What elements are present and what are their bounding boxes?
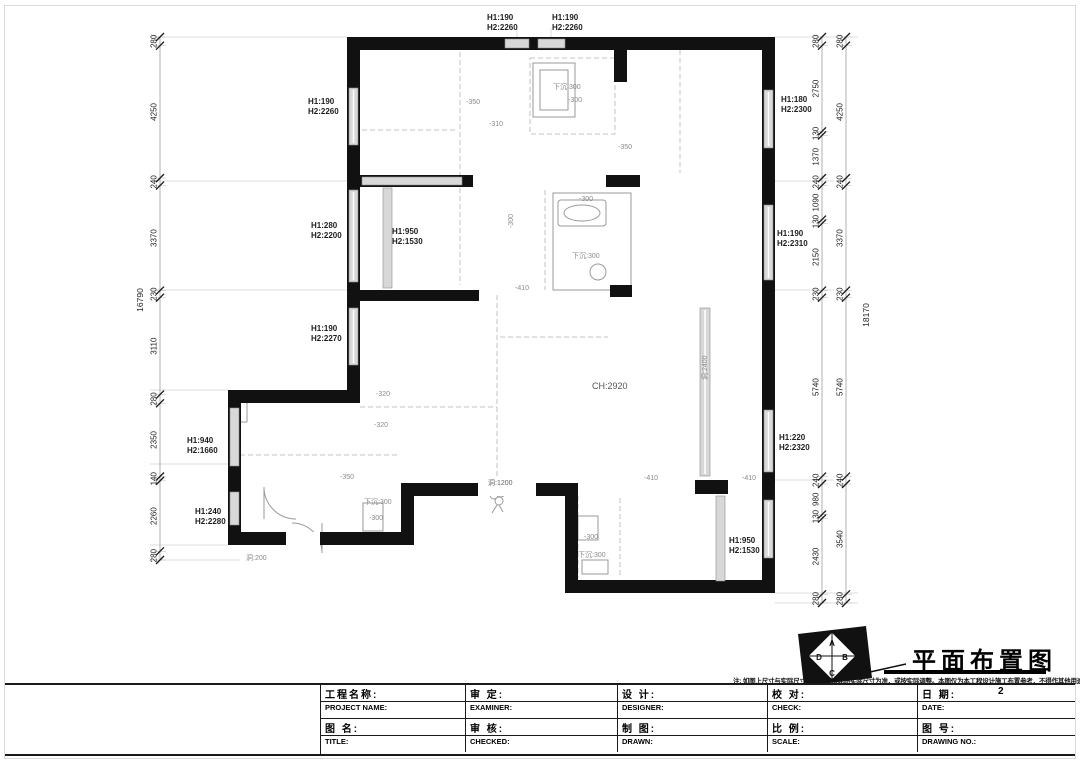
h1-value: H1:280 xyxy=(311,221,337,230)
level-annotation: -350 xyxy=(618,144,632,151)
h2-value: H2:2260 xyxy=(308,107,339,116)
field-drawing-no-en: DRAWING NO.: xyxy=(918,736,1074,752)
level-annotation: -310 xyxy=(489,121,503,128)
field-check-en: CHECK: xyxy=(768,702,918,718)
h2-value: H2:2260 xyxy=(487,23,518,32)
wall-height-label: H1:190H2:2270 xyxy=(311,324,342,343)
field-checked-cn: 审 核: xyxy=(466,719,618,735)
level-annotation: -300 xyxy=(579,196,593,203)
h1-value: H1:190 xyxy=(311,324,337,333)
h1-value: H1:240 xyxy=(195,507,221,516)
level-annotation: -350 xyxy=(466,99,480,106)
ceiling-height-label: CH:2920 xyxy=(592,381,628,391)
field-date-en: DATE: xyxy=(918,702,1074,718)
wall-height-label: H1:280H2:2200 xyxy=(311,221,342,240)
level-annotation: -300 xyxy=(568,97,582,104)
field-designer-en: DESIGNER: xyxy=(618,702,768,718)
h1-value: H1:190 xyxy=(777,229,803,238)
field-title-cn: 图 名: xyxy=(321,719,466,735)
level-annotation: -300 xyxy=(508,214,515,228)
title-block-table: 工程名称: 审 定: 设 计: 校 对: 日 期: 2 PROJECT NAME… xyxy=(320,685,1075,754)
level-annotation: 下沉:300 xyxy=(572,251,600,261)
level-annotation: 下沉:300 xyxy=(553,82,581,92)
drawing-sheet: A B C D 28042502403370230311028023501402… xyxy=(0,0,1080,764)
h2-value: H2:2320 xyxy=(779,443,810,452)
wall-height-label: H1:180H2:2300 xyxy=(781,95,812,114)
drawing-title-underline xyxy=(884,670,1046,674)
field-date-value: 2 xyxy=(998,686,1006,697)
field-drawn-cn: 制 图: xyxy=(618,719,768,735)
field-drawing-no-cn: 图 号: xyxy=(918,719,1074,735)
h1-value: H1:950 xyxy=(729,536,755,545)
h1-value: H1:190 xyxy=(487,13,513,22)
level-annotation: 洞:2400 xyxy=(700,355,710,380)
level-annotation: -320 xyxy=(374,422,388,429)
level-annotation: -320 xyxy=(376,391,390,398)
level-annotation: -350 xyxy=(340,474,354,481)
field-drawn-en: DRAWN: xyxy=(618,736,768,752)
h2-value: H2:2310 xyxy=(777,239,808,248)
field-project-name-en: PROJECT NAME: xyxy=(321,702,466,718)
level-annotation: 下沉:300 xyxy=(578,550,606,560)
level-annotation: -300 xyxy=(369,515,383,522)
h1-value: H1:180 xyxy=(781,95,807,104)
wall-height-label: H1:240H2:2280 xyxy=(195,507,226,526)
h1-value: H1:220 xyxy=(779,433,805,442)
field-designer-cn: 设 计: xyxy=(618,685,768,701)
wall-height-label: H1:220H2:2320 xyxy=(779,433,810,452)
h2-value: H2:2280 xyxy=(195,517,226,526)
h1-value: H1:940 xyxy=(187,436,213,445)
field-checked-en: CHECKED: xyxy=(466,736,618,752)
h1-value: H1:190 xyxy=(552,13,578,22)
wall-height-label: H1:190H2:2310 xyxy=(777,229,808,248)
field-scale-en: SCALE: xyxy=(768,736,918,752)
field-examiner-cn: 审 定: xyxy=(466,685,618,701)
wall-height-label: H1:950H2:1530 xyxy=(729,536,760,555)
field-date-cn: 日 期: 2 xyxy=(918,685,1074,701)
field-project-name-cn: 工程名称: xyxy=(321,685,466,701)
h1-value: H1:950 xyxy=(392,227,418,236)
level-annotation: -410 xyxy=(515,285,529,292)
level-annotation: 洞:200 xyxy=(246,553,267,563)
level-annotation: -300 xyxy=(584,534,598,541)
h2-value: H2:2200 xyxy=(311,231,342,240)
field-scale-cn: 比 例: xyxy=(768,719,918,735)
level-annotation: -410 xyxy=(644,475,658,482)
wall-height-label: H1:190H2:2260 xyxy=(308,97,339,116)
field-title-en: TITLE: xyxy=(321,736,466,752)
wall-height-label: H1:950H2:1530 xyxy=(392,227,423,246)
wall-height-label: H1:190H2:2260 xyxy=(487,13,518,32)
h1-value: H1:190 xyxy=(308,97,334,106)
h2-value: H2:1530 xyxy=(392,237,423,246)
level-annotation: 下沉:300 xyxy=(364,497,392,507)
h2-value: H2:2260 xyxy=(552,23,583,32)
field-date-label: 日 期: xyxy=(922,690,956,701)
level-annotation: -410 xyxy=(742,475,756,482)
wall-height-label: H1:940H2:1660 xyxy=(187,436,218,455)
level-annotation: 洞:1200 xyxy=(486,478,515,488)
h2-value: H2:1530 xyxy=(729,546,760,555)
h2-value: H2:2270 xyxy=(311,334,342,343)
h2-value: H2:1660 xyxy=(187,446,218,455)
title-block: NAN HONG 浙江南鸿装饰股份有限公司 ZHEJIANG NANHONG D… xyxy=(5,683,1075,756)
h2-value: H2:2300 xyxy=(781,105,812,114)
field-examiner-en: EXAMINER: xyxy=(466,702,618,718)
wall-height-label: H1:190H2:2260 xyxy=(552,13,583,32)
field-check-cn: 校 对: xyxy=(768,685,918,701)
